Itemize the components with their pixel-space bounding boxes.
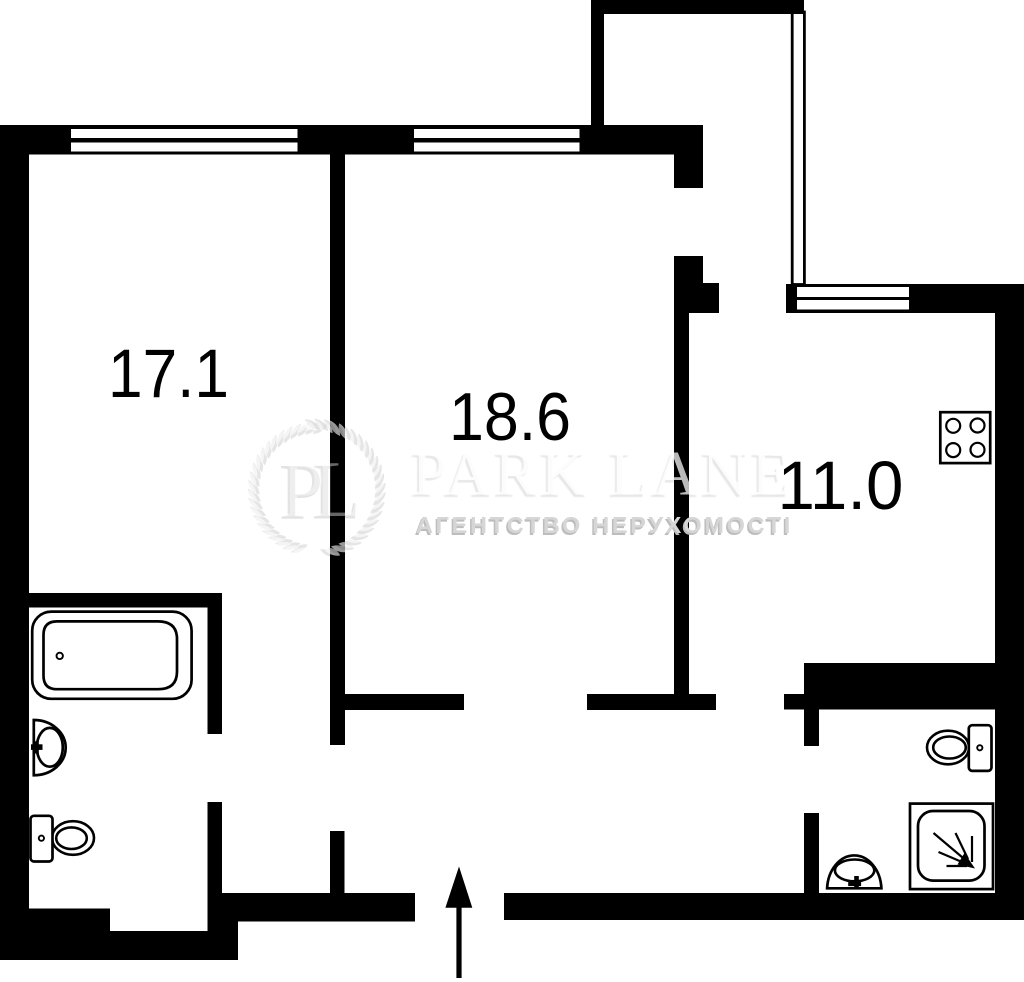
svg-text:АГЕНТСТВО НЕРУХОМОСТІ: АГЕНТСТВО НЕРУХОМОСТІ bbox=[416, 512, 793, 538]
svg-text:18.6: 18.6 bbox=[449, 380, 571, 455]
svg-text:11.0: 11.0 bbox=[778, 447, 904, 524]
svg-text:17.1: 17.1 bbox=[108, 335, 229, 412]
svg-text:PL: PL bbox=[281, 446, 359, 534]
